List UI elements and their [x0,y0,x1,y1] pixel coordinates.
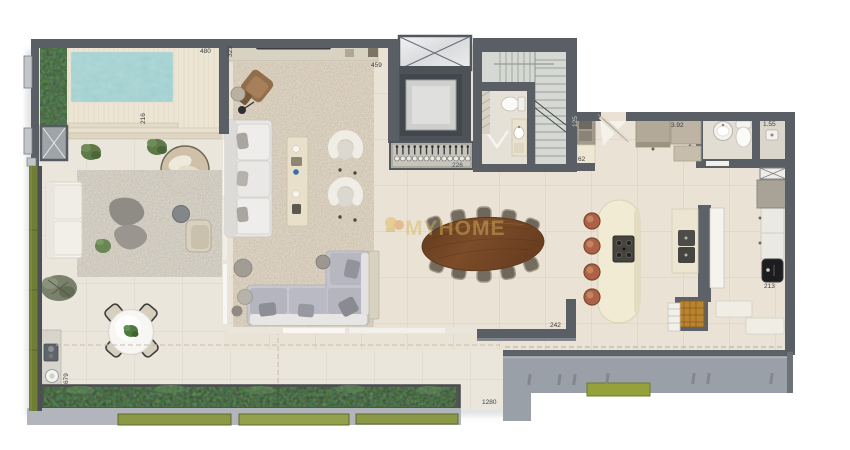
svg-text:62: 62 [578,156,586,163]
svg-text:226: 226 [452,162,463,169]
svg-text:459: 459 [371,62,382,69]
svg-text:480: 480 [200,48,211,55]
svg-text:679: 679 [63,373,70,384]
svg-text:213: 213 [764,283,775,290]
svg-text:216: 216 [140,113,147,124]
svg-text:1.55: 1.55 [763,121,776,128]
svg-text:242: 242 [550,322,561,329]
svg-text:125: 125 [572,116,579,127]
svg-text:1280: 1280 [482,399,497,406]
svg-text:MYHOME: MYHOME [405,217,506,240]
svg-text:323: 323 [227,46,234,57]
svg-text:3.92: 3.92 [671,122,684,129]
